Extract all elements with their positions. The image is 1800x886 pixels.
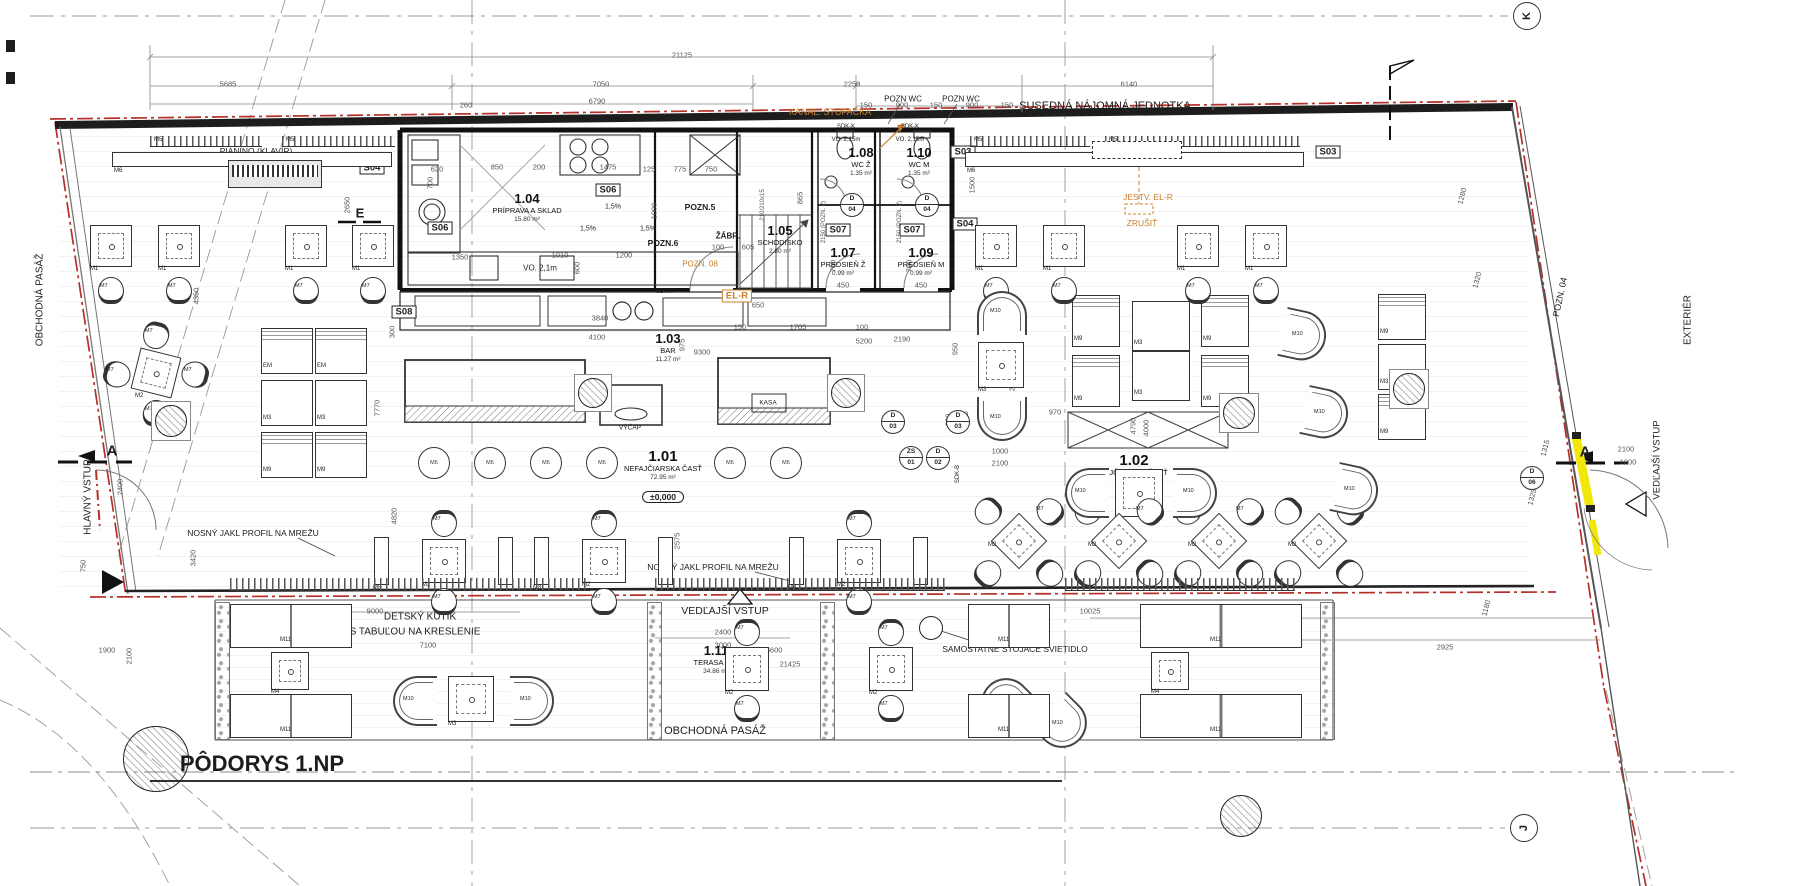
dimension-label: 4350 (192, 288, 201, 305)
dimension-label: 450 (837, 281, 850, 290)
dimension-label: 100 (712, 243, 725, 252)
annotation-text: 1,5% (580, 226, 596, 233)
dimension-label: 6140 (1121, 80, 1138, 89)
room-area: 1.35 m² (848, 170, 873, 177)
dimension-label: 100 (856, 323, 869, 332)
planter-strip (820, 602, 835, 740)
furniture-code-label: M1 (285, 266, 293, 272)
dimension-label: 450 (915, 281, 928, 290)
furniture-code-label: M11 (280, 637, 291, 643)
dimension-label: 2150 (POZN. 2) (821, 201, 827, 243)
dimension-label: 5685 (220, 80, 237, 89)
dimension-label: 2650 (343, 197, 352, 214)
furniture-code-label: M2 (135, 393, 143, 399)
dimension-label: 1000 (992, 447, 1009, 456)
furniture-code-label: M7 (1255, 283, 1263, 289)
dimension-label: 4820 (390, 508, 399, 525)
room-number: 1.08 (848, 146, 873, 161)
room-name: WC M (906, 161, 931, 170)
room-area: 11.27 m² (655, 356, 680, 363)
door-marker-number: 03 (882, 421, 904, 432)
grid-axis-bubble: J (1510, 814, 1538, 842)
furniture-code-label: M9 (263, 467, 271, 473)
furniture-code-label: M7 (145, 328, 153, 334)
furniture-code-label: M7 (848, 516, 856, 522)
table-m1 (158, 225, 200, 267)
furniture-code-label: M1 (1245, 266, 1253, 272)
annotation-text: VEDĽAJŠÍ VSTUP (1652, 420, 1663, 499)
furniture-code-label: M10 (1075, 488, 1086, 494)
table-center (371, 244, 377, 250)
furniture-code-label: M10 (990, 308, 1001, 314)
annotation-text: SDK-K (901, 124, 919, 130)
chair-m7 (431, 588, 457, 615)
detail-marker-s07: S07 (900, 224, 925, 237)
annotation-text: SDK-B (955, 465, 961, 483)
furniture-code-label: M7 (100, 283, 108, 289)
window-grille-strip (1065, 578, 1295, 591)
dimension-label: 950 (951, 343, 960, 356)
annotation-text: VO. 2,1m (523, 264, 557, 273)
dimension-label: 125 (643, 165, 656, 174)
furniture-code-label: M2 (1088, 542, 1096, 548)
furniture-code-label: M10 (1344, 486, 1355, 492)
dimension-label: 700 (426, 177, 435, 190)
annotation-text: PÔDORYS 1.NP (180, 751, 344, 777)
dimension-label: 260 (460, 101, 473, 110)
dimension-label: 1900 (99, 646, 116, 655)
grid-axis-letter: K (1521, 12, 1533, 20)
window-grille-strip (655, 578, 945, 591)
room-label: 1.05SCHODISKO2.80 m² (757, 224, 802, 255)
table-center (177, 244, 183, 250)
door-marker-number: 03 (947, 421, 969, 432)
bar-stool-m5: M5 (418, 447, 450, 479)
chair-m7 (878, 619, 904, 646)
table-m1 (1177, 225, 1219, 267)
annotation-text: POZN. 08 (682, 260, 718, 269)
furniture-code-label: EM (263, 363, 272, 369)
furniture-code-label: M3 (1134, 390, 1142, 396)
room-label: 1.09PREDSIEŇ M0.99 m² (898, 246, 945, 277)
room-number: 1.09 (898, 246, 945, 261)
chair-m7 (293, 277, 319, 304)
room-number: 1.03 (655, 332, 680, 347)
dimension-label: 865 (796, 192, 805, 205)
detail-marker-el-r: EL-R (722, 290, 752, 303)
dimension-label: 6790 (589, 97, 606, 106)
table-m3 (448, 676, 494, 722)
dimension-label: 650 (752, 301, 765, 310)
furniture-code-label: M5 (974, 137, 982, 143)
room-label: 1.07PREDSIEŇ Ž0.99 m² (820, 246, 865, 277)
chair-m7 (360, 277, 386, 304)
annotation-text: OBCHODNÁ PASÁŽ (664, 725, 766, 737)
room-area: 72.95 m² (624, 474, 702, 481)
table-center (994, 244, 1000, 250)
furniture-code-label: M2 (988, 542, 996, 548)
furniture-code-label: M3 (263, 415, 271, 421)
structural-column (155, 405, 187, 437)
room-label: 1.10WC M1.35 m² (906, 146, 931, 177)
chair-m7 (846, 510, 872, 537)
furniture-code-label: M7 (168, 283, 176, 289)
dimension-label: 4000 (1142, 420, 1151, 437)
door-marker-type: ZS (900, 447, 922, 457)
dimension-label: 300 (388, 326, 397, 339)
dimension-label: 2400 (116, 479, 125, 496)
furniture-code-label: M3 (978, 387, 986, 393)
door-marker-type: D (1521, 467, 1543, 477)
room-number: 1.10 (906, 146, 931, 161)
dimension-label: 2190 (894, 335, 911, 344)
wall-panel-m5 (282, 136, 395, 147)
grid-axis-bubble: K (1513, 2, 1541, 30)
dimension-label: 2100 (1618, 445, 1635, 454)
annotation-text: KASA (759, 400, 776, 407)
table-m1 (90, 225, 132, 267)
furniture-code-label: M9 (1203, 396, 1211, 402)
room-label: 1.04PRÍPRAVA A SKLAD15.80 m² (492, 192, 561, 223)
room-name: SCHODISKO (757, 239, 802, 248)
furniture-code-label: M7 (106, 367, 114, 373)
datum-level-badge: ±0,000 (642, 491, 684, 503)
table-center (1264, 244, 1270, 250)
room-name: WC Ž (848, 161, 873, 170)
window-grille-strip (230, 578, 590, 591)
furniture-code-label: M11 (1210, 727, 1221, 733)
furniture-code-label: M1 (352, 266, 360, 272)
dimension-label: 10025 (1080, 607, 1101, 616)
table-center (1062, 244, 1068, 250)
annotation-text: JESTV. EL-R (1123, 192, 1173, 202)
bar-stool-m5: M5 (530, 447, 562, 479)
furniture-code-label: M9 (1203, 336, 1211, 342)
table-center (109, 244, 115, 250)
furniture-code-label: M10 (403, 696, 414, 702)
annotation-text: VÝČAP (619, 425, 641, 432)
furniture-code-label: M7 (1136, 506, 1144, 512)
table-center (1196, 244, 1202, 250)
furniture-code-label: M2 (1288, 542, 1296, 548)
annotation-text: 1,5% (605, 204, 621, 211)
door-marker-type: D (882, 411, 904, 421)
furniture-code-label: M7 (362, 283, 370, 289)
furniture-code-label: M9 (1380, 329, 1388, 335)
wall-panel-m5 (150, 136, 262, 147)
dimension-label: 2400 (715, 628, 732, 637)
planter-strip (215, 602, 230, 740)
annotation-text: HLAVNÝ VSTUP (83, 459, 94, 534)
furniture-code-label: M7 (1036, 506, 1044, 512)
door-marker: D04 (915, 193, 939, 217)
chair-m7 (1185, 277, 1211, 304)
furniture-code-label: M7 (433, 594, 441, 600)
furniture-code-label: M7 (295, 283, 303, 289)
table-m2 (869, 647, 913, 691)
bar-stool-m5: M5 (586, 447, 618, 479)
table-center (857, 559, 863, 565)
table-m1 (1043, 225, 1085, 267)
dimension-label: 2100 (992, 459, 1009, 468)
furniture-code-label: M10 (1292, 331, 1303, 337)
chair-m7 (734, 695, 760, 722)
furniture-code-label: M7 (433, 516, 441, 522)
dimension-label: 150 (1001, 101, 1014, 110)
dimension-label: 200 (533, 163, 546, 172)
furniture-code-label: M10 (990, 414, 1001, 420)
structural-column (1393, 373, 1425, 405)
furniture-code-label: M9 (317, 467, 325, 473)
dimension-label: 2150 (POZN. 2) (897, 201, 903, 243)
dimension-label: 7100 (420, 641, 437, 650)
furniture-code-label: M10 (1314, 409, 1325, 415)
dimension-label: 750 (79, 560, 88, 573)
room-number: 1.02 (1100, 452, 1168, 469)
structural-column (831, 378, 861, 408)
annotation-text: VEDĽAJŠÍ VSTUP (681, 605, 769, 617)
furniture-code-label: M10 (1183, 488, 1194, 494)
bar-stool-m5: M5 (714, 447, 746, 479)
furniture-code-label: M7 (880, 625, 888, 631)
detail-marker-s07: S07 (826, 224, 851, 237)
room-name: BAR (655, 347, 680, 356)
annotation-text: SUSEDNÁ NÁJOMNÁ JEDNOTKA (1019, 100, 1191, 112)
dimension-label: 1500 (968, 177, 977, 194)
annotation-text: POZN.5 (685, 202, 716, 212)
chair-m7 (846, 588, 872, 615)
furniture-code-label: M11 (280, 727, 291, 733)
booth-seat-m10 (1065, 468, 1109, 518)
furniture-code-label: M1 (975, 266, 983, 272)
annotation-text: ZRUŠIŤ (1127, 218, 1158, 228)
table-center (469, 697, 475, 703)
dimension-label: 4100 (589, 333, 606, 342)
table-center (1168, 669, 1174, 675)
dimension-label: 150 (734, 323, 747, 332)
planter-strip (647, 602, 662, 740)
table-center (602, 559, 608, 565)
furniture-code-label: M2 (1188, 542, 1196, 548)
furniture-code-label: M9 (1074, 396, 1082, 402)
furniture-code-label: M7 (736, 625, 744, 631)
annotation-text: 1,5% (640, 226, 656, 233)
room-area: 0.99 m² (820, 270, 865, 277)
furniture-code-label: M1 (1177, 266, 1185, 272)
dimension-label: 900 (966, 101, 979, 110)
furniture-code-label: M3 (317, 415, 325, 421)
dimension-label: 2575 (673, 533, 682, 550)
annotation-text: A (1580, 444, 1591, 461)
furniture-code-label: M10 (520, 696, 531, 702)
dimension-label: 7050 (593, 80, 610, 89)
furniture-code-label: M6 (114, 168, 122, 174)
door-marker: D06 (1520, 466, 1544, 490)
annotation-text: SDK-A (656, 289, 674, 295)
dimension-label: 1000 (650, 203, 659, 220)
door-marker-number: 02 (927, 457, 949, 468)
room-label: 1.08WC Ž1.35 m² (848, 146, 873, 177)
dimension-label: 3840 (592, 314, 609, 323)
table-center (288, 669, 294, 675)
dimension-label: 4790 (1129, 418, 1138, 435)
furniture-code-label: M7 (593, 594, 601, 600)
furniture-code-label: M7 (1053, 283, 1061, 289)
chair-m7 (166, 277, 192, 304)
dimension-label: 1000 (1620, 458, 1637, 467)
table-m1 (352, 225, 394, 267)
room-name: PRÍPRAVA A SKLAD (492, 207, 561, 216)
furniture-code-label: M7 (985, 283, 993, 289)
table-m3 (978, 342, 1024, 388)
table-m2 (422, 539, 466, 583)
annotation-text: A (107, 443, 118, 460)
dimension-label: 1475 (600, 163, 617, 172)
dimension-label: 1705 (790, 323, 807, 332)
furniture-code-label: M1 (1043, 266, 1051, 272)
room-number: 1.07 (820, 246, 865, 261)
dimension-label: 1350 (452, 253, 469, 262)
annotation-text: VO. 2,15m (896, 137, 925, 143)
annotation-text: POZN.6 (648, 238, 679, 248)
bar-stool-m5: M5 (770, 447, 802, 479)
dimension-label: 2100 (125, 648, 134, 665)
wall-panel-m5 (970, 136, 1090, 147)
detail-marker-s06: S06 (428, 222, 453, 235)
dimension-label: 2250 (844, 80, 861, 89)
door-marker-number: 06 (1521, 477, 1543, 488)
furniture-code-label: M9 (1074, 336, 1082, 342)
furniture-code-label: M10 (1052, 720, 1063, 726)
table-m2 (837, 539, 881, 583)
detail-marker-s03: S03 (1316, 146, 1341, 159)
room-name: PREDSIEŇ Ž (820, 261, 865, 270)
structural-column (578, 378, 608, 408)
furniture-code-label: M3 (448, 721, 456, 727)
furniture-code-label: M2 (869, 690, 877, 696)
dimension-label: 150 (930, 101, 943, 110)
dimension-label: 21125 (672, 51, 692, 60)
furniture-code-label: M11 (998, 637, 1009, 643)
door-marker: ZS01 (899, 446, 923, 470)
table-center (999, 363, 1005, 369)
table-m2 (582, 539, 626, 583)
dimension-label: 150 (860, 101, 873, 110)
table-m1 (975, 225, 1017, 267)
dimension-label: 750 (705, 165, 718, 174)
furniture-code-label: M9 (1380, 429, 1388, 435)
door-marker-number: 04 (916, 204, 938, 215)
room-area: 0.99 m² (898, 270, 945, 277)
furniture-code-label: M1 (158, 266, 166, 272)
door-marker: D03 (881, 410, 905, 434)
table-m1 (1245, 225, 1287, 267)
dimension-label: 775 (674, 165, 687, 174)
furniture-code-label: M7 (1187, 283, 1195, 289)
furniture-code-label: M3 (1380, 379, 1388, 385)
door-marker: D02 (926, 446, 950, 470)
dimension-label: 900 (896, 101, 909, 110)
furniture-code-label: M7 (880, 701, 888, 707)
dimension-label: 7770 (373, 400, 382, 417)
table-m4 (1151, 652, 1189, 690)
room-area: 1.35 m² (906, 170, 931, 177)
planter-strip (1320, 602, 1335, 740)
chair-m7 (1253, 277, 1279, 304)
table-m4 (271, 652, 309, 690)
door-marker-type: D (927, 447, 949, 457)
room-label: 1.03BAR11.27 m² (655, 332, 680, 363)
grid-axis-letter: J (1518, 825, 1530, 831)
room-area: 2.80 m² (757, 248, 802, 255)
furniture-code-label: M7 (184, 367, 192, 373)
annotation-text: VO. 2,15m (832, 137, 861, 143)
structural-column (1223, 397, 1255, 429)
chair-m7 (591, 588, 617, 615)
furniture-code-label: M1 (90, 266, 98, 272)
standing-light (919, 616, 943, 640)
chair-m7 (591, 510, 617, 537)
door-marker: D03 (946, 410, 970, 434)
chair-m7 (878, 695, 904, 722)
room-name: PREDSIEŇ M (898, 261, 945, 270)
table-center (304, 244, 310, 250)
annotation-text: NOSNÝ JAKL PROFIL NA MREŽU (187, 528, 319, 538)
table-m1 (285, 225, 327, 267)
annotation-text: ŽÁBR. (716, 232, 740, 241)
furniture-code-label: M6 (967, 168, 975, 174)
chair-m7 (1051, 277, 1077, 304)
annotation-text: SDK-K (837, 124, 855, 130)
room-area: 15.80 m² (492, 216, 561, 223)
annotation-text: EXTERIÉR (1683, 295, 1694, 345)
dimension-label: 600 (573, 262, 582, 275)
dimension-label: 1010 (552, 251, 569, 260)
door-marker-type: D (916, 194, 938, 204)
dimension-label: 9300 (694, 348, 711, 357)
furniture-code-label: M11 (1210, 637, 1221, 643)
dimension-label: 2925 (1437, 643, 1454, 652)
room-label: 1.01NEFAJČIARSKA ČASŤ72.95 m² (624, 448, 702, 481)
detail-marker-s04: S04 (953, 218, 978, 231)
dimension-label: 1200 (616, 251, 633, 260)
booth-seat-m10 (393, 676, 437, 726)
dimension-label: 210/210x15 (760, 189, 766, 220)
door-marker-type: D (947, 411, 969, 421)
room-number: 1.01 (624, 448, 702, 465)
table-center (1137, 491, 1143, 497)
furniture-code-label: M7 (736, 701, 744, 707)
dimension-label: 21425 (780, 660, 801, 669)
chair-m7 (734, 619, 760, 646)
booth-seat-m10 (977, 291, 1027, 335)
annotation-text: E (356, 206, 365, 221)
furniture-code-label: M11 (998, 727, 1009, 733)
annotation-text: S TABUĽOU NA KRESLENIE (350, 627, 481, 638)
structural-column (1220, 795, 1262, 837)
detail-marker-s08: S08 (392, 306, 417, 319)
chair-m7 (431, 510, 457, 537)
structural-column (123, 726, 189, 792)
table-m2 (725, 647, 769, 691)
furniture-code-label: M7 (1236, 506, 1244, 512)
floorplan-canvas: SUSEDNÁ NÁJOMNÁ JEDNOTKAKANAL. STUPAČKAP… (0, 0, 1800, 886)
dimension-label: 850 (491, 163, 504, 172)
furniture-code-label: M3 (1134, 340, 1142, 346)
door-marker-number: 04 (841, 204, 863, 215)
detail-marker-s06: S06 (596, 184, 621, 197)
built-in-fireplace (1092, 141, 1182, 159)
